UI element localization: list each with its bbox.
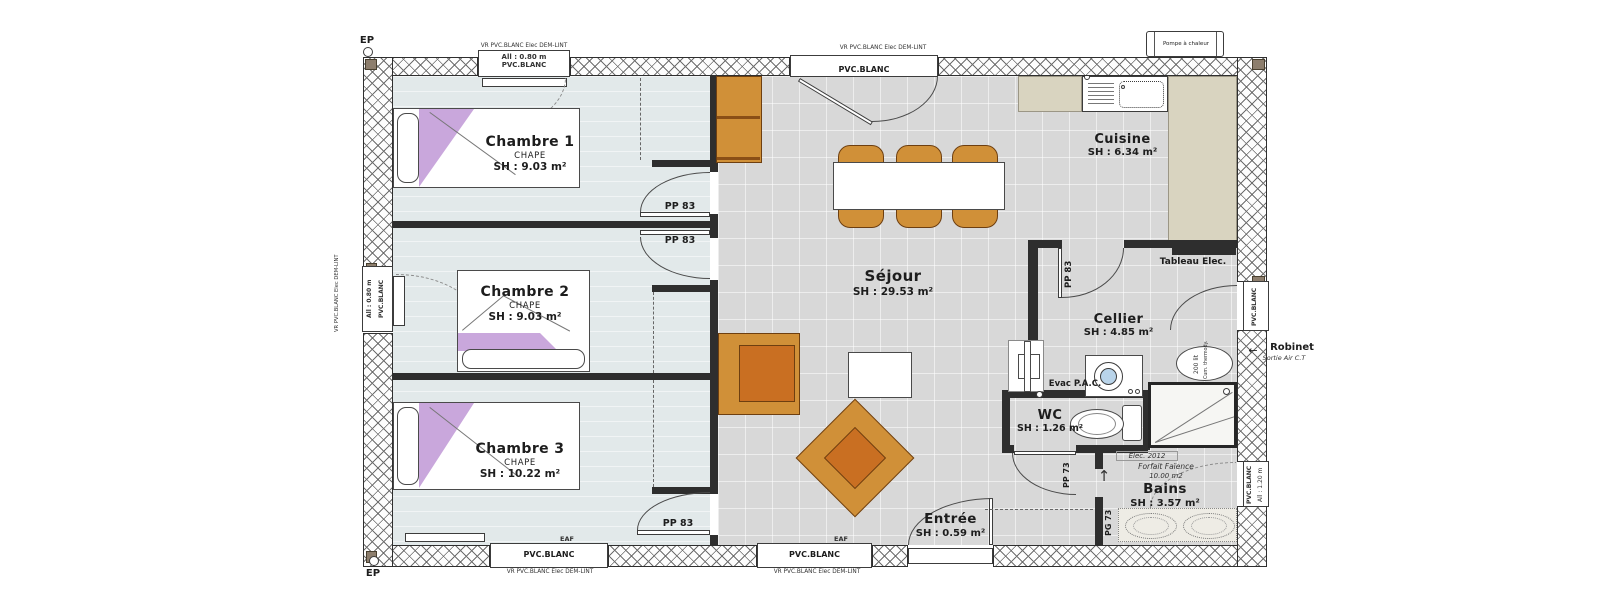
shower-head-icon <box>1223 388 1230 395</box>
wardrobe-shelf-line-1 <box>717 116 760 119</box>
label-chambre1: Chambre 1 CHAPE SH : 9.03 m² <box>430 134 630 176</box>
closet-stub-ch1 <box>652 160 718 167</box>
window-ch3-eaf-label: EAF <box>552 536 582 544</box>
wall-cellier-top-right <box>1124 240 1237 248</box>
ep-top-icon <box>363 47 373 57</box>
window-ch1-material-label: PVC.BLANC <box>479 61 569 69</box>
wall-exterior-bottom-2 <box>608 545 757 567</box>
heat-pump-label: Pompe à chaleur <box>1155 41 1217 49</box>
kitchen-counter-top <box>1018 76 1082 112</box>
closet-line-ch3 <box>653 380 654 487</box>
coffee-table <box>848 352 912 398</box>
window-ch2-material-label: PVC.BLANC <box>378 272 389 326</box>
label-chambre3: Chambre 3 CHAPE SH : 10.22 m² <box>420 441 620 483</box>
bains-elec-note: Elec. 2012 <box>1116 451 1178 461</box>
cellier-name: Cellier <box>1046 312 1191 327</box>
chambre3-screed: CHAPE <box>420 458 620 468</box>
door-ch1-label: PP 83 <box>650 201 710 212</box>
wall-ch2-ch3 <box>393 373 710 380</box>
tableau-elec-label: Tableau Elec. <box>1150 257 1236 268</box>
vanity-sink-2-inner <box>1191 517 1227 535</box>
door-cellier-label: PP 83 <box>1064 251 1078 297</box>
door-service-label: PVC.BLANC <box>1251 285 1262 329</box>
washer-knob-2 <box>1135 389 1140 394</box>
window-sejour-bottom: PVC.BLANC <box>757 543 872 568</box>
corner-cap-top-right <box>1252 59 1265 70</box>
chambre2-name: Chambre 2 <box>425 284 625 301</box>
chambre3-name: Chambre 3 <box>420 441 620 458</box>
wall-exterior-bottom-4 <box>993 545 1267 567</box>
ep-bottom-label: EP <box>362 568 384 579</box>
washer-knob-1 <box>1128 389 1133 394</box>
water-heater-capacity: 200 lit <box>1193 350 1203 379</box>
window-bains-material-label: PVC.BLANC <box>1246 464 1256 506</box>
door-wc-label: PP 73 <box>1062 455 1075 495</box>
wall-exterior-top-3 <box>938 57 1267 76</box>
door-ch1-leaf <box>640 212 710 217</box>
door-service-cellier: PVC.BLANC <box>1243 281 1269 331</box>
sejour-name: Séjour <box>808 268 978 286</box>
toilet-tank <box>1122 405 1142 441</box>
entrance-door-threshold <box>908 548 993 564</box>
vanity-sink-1-inner <box>1133 517 1169 535</box>
shower <box>1148 382 1237 448</box>
closet-line-ch1 <box>640 78 641 160</box>
dining-table <box>833 162 1005 210</box>
door-sejour-top: PVC.BLANC <box>790 55 938 77</box>
wc-name: WC <box>995 408 1105 423</box>
cellier-area: SH : 4.85 m² <box>1046 327 1191 339</box>
sink-drainboard <box>1088 83 1114 107</box>
shower-diagonal-1 <box>1155 392 1233 443</box>
window-sejour-bottom-shutter-label: VR PVC.BLANC Elec DEM-LINT <box>762 569 872 577</box>
wall-bedrooms-vertical-4 <box>710 535 718 545</box>
chambre1-name: Chambre 1 <box>430 134 630 151</box>
entree-name: Entrée <box>888 512 1013 528</box>
wall-exterior-left-1 <box>363 57 393 267</box>
label-chambre2: Chambre 2 CHAPE SH : 9.03 m² <box>425 284 625 326</box>
window-ch1-shutter-label: VR PVC.BLANC Elec DEM-LINT <box>468 43 580 51</box>
wardrobe-sejour <box>716 76 762 163</box>
bains-area: SH : 3.57 m² <box>1100 498 1230 510</box>
chambre2-screed: CHAPE <box>425 301 625 311</box>
door-sejour-top-label: PVC.BLANC <box>791 65 937 74</box>
ep-bottom-icon <box>369 556 379 566</box>
entree-area: SH : 0.59 m² <box>888 528 1013 540</box>
cuisine-area: SH : 6.34 m² <box>1050 147 1195 159</box>
bains-faience-note: Forfait Faïence <box>1118 463 1214 472</box>
sejour-area: SH : 29.53 m² <box>808 286 978 298</box>
chambre1-screed: CHAPE <box>430 151 630 161</box>
floor-drain-icon <box>1036 391 1043 398</box>
wall-exterior-top-2 <box>570 57 790 76</box>
bains-name: Bains <box>1100 482 1230 498</box>
window-ch1-top: All : 0.80 m PVC.BLANC <box>478 50 570 77</box>
door-ch3-leaf <box>637 530 710 535</box>
evac-pac-label: Evac P.A.C. <box>1035 379 1115 390</box>
window-bains-alt-label: All : 1.20 m <box>1257 464 1267 506</box>
chambre2-area: SH : 9.03 m² <box>425 311 625 323</box>
wall-exterior-left-2 <box>363 333 393 567</box>
wall-bedrooms-vertical-3 <box>710 280 718 493</box>
chambre1-area: SH : 9.03 m² <box>430 161 630 173</box>
wc-area: SH : 1.26 m² <box>995 423 1105 434</box>
window-ch2-shutter-label: VR PVC.BLANC Elec DEM-LINT <box>334 266 343 332</box>
window-sejour-bottom-eaf-label: EAF <box>826 536 856 544</box>
shower-diagonal-2 <box>1155 416 1234 443</box>
chambre3-area: SH : 10.22 m² <box>420 468 620 480</box>
bains-vanity <box>1118 508 1237 542</box>
label-bains: Bains SH : 3.57 m² <box>1100 482 1230 512</box>
robinet-label: Robinet <box>1266 342 1318 354</box>
sink-tap-icon <box>1121 85 1125 89</box>
door-sejour-top-shutter-label: VR PVC.BLANC Elec DEM-LINT <box>828 45 938 53</box>
wall-exterior-right-1 <box>1237 57 1267 282</box>
label-sejour: Séjour SH : 29.53 m² <box>808 268 978 300</box>
label-entree: Entrée SH : 0.59 m² <box>888 512 1013 540</box>
sortie-air-label: Sortie Air C.T <box>1256 355 1312 363</box>
window-ch3-shutter-label: VR PVC.BLANC Elec DEM-LINT <box>495 569 605 577</box>
window-ch2-left: All : 0.80 m PVC.BLANC <box>362 266 393 332</box>
wall-exterior-bottom-3 <box>872 545 908 567</box>
door-ch2-label: PP 83 <box>650 235 710 246</box>
washing-machine <box>1085 355 1143 397</box>
window-ch3-bottom: PVC.BLANC <box>490 543 608 568</box>
door-ch3-label: PP 83 <box>648 518 708 529</box>
sofa-seat <box>739 345 795 402</box>
electric-panel-band <box>1172 248 1236 255</box>
kitchen-sink-unit <box>1082 76 1168 112</box>
window-sejour-bottom-material-label: PVC.BLANC <box>758 550 871 559</box>
closet-line-ch2 <box>653 292 654 373</box>
label-cellier: Cellier SH : 4.85 m² <box>1046 312 1191 340</box>
floor-plan: All : 0.80 m PVC.BLANC VR PVC.BLANC Elec… <box>0 0 1600 600</box>
window-bains-right: PVC.BLANC All : 1.20 m <box>1243 461 1269 507</box>
heat-pump-unit: Pompe à chaleur <box>1146 31 1224 57</box>
label-cuisine: Cuisine SH : 6.34 m² <box>1050 132 1195 160</box>
sink-bowl <box>1119 81 1164 108</box>
window-ch3-radiator <box>405 533 485 542</box>
window-ch1-alt-label: All : 0.80 m <box>479 53 569 61</box>
tv-screen <box>1024 341 1031 392</box>
water-heater: 200 lit Cum. thermody. <box>1176 346 1233 381</box>
bed-ch2-pillow <box>462 349 585 369</box>
bed-ch3-pillow <box>397 407 419 485</box>
closet-stub-ch2 <box>652 285 718 292</box>
bed-ch1-pillow <box>397 113 419 183</box>
bains-faience-area: 10.00 m2 <box>1130 472 1202 480</box>
wardrobe-shelf-line-2 <box>717 157 760 160</box>
water-heater-type: Cum. thermody. <box>1204 350 1214 379</box>
window-ch3-material-label: PVC.BLANC <box>491 550 607 559</box>
sofa <box>718 333 800 415</box>
entree-dashed-line <box>985 509 1093 510</box>
wall-exterior-right-3 <box>1237 506 1267 567</box>
label-wc: WC SH : 1.26 m² <box>995 408 1105 438</box>
wall-ch1-ch2 <box>393 221 710 228</box>
corner-cap-top-left <box>365 59 377 70</box>
ep-top-label: EP <box>356 35 378 46</box>
window-ch2-alt-label: All : 0.80 m <box>366 272 377 326</box>
wall-bedrooms-vertical-2 <box>710 214 718 238</box>
cuisine-name: Cuisine <box>1050 132 1195 147</box>
wall-wc-bottom-left <box>1002 445 1014 453</box>
